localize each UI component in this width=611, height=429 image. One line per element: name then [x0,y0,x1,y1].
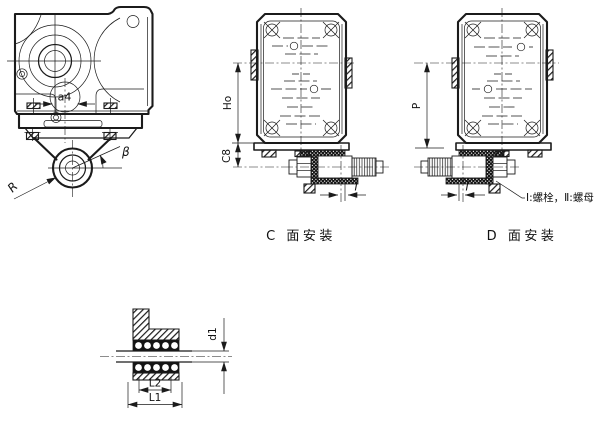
d-height-label: P [411,103,423,109]
hub-upper-bushing [133,340,179,351]
d-left-tab [452,58,459,88]
c-face-caption: C 面安装 [266,229,336,244]
c-height-label: Ho [222,96,234,110]
c-foot-left [262,150,276,157]
hanger-bolt-left [27,133,39,140]
reducer-mounting-drawing: a4 [0,0,611,429]
hub-lower-bushing [133,362,179,373]
d-right-tab [546,50,553,80]
legend-note-text: Ⅰ:螺栓，Ⅱ:螺母 [526,191,594,204]
hub-length-label: L2 [149,378,162,390]
drawing-background [0,0,611,429]
technical-drawing-canvas: a4 [0,0,611,429]
total-length-label: L1 [149,392,162,404]
center-distance-label: a4 [58,91,72,104]
c-right-tab [345,58,352,88]
c-left-tab [251,50,258,80]
angle-label: β [121,145,130,159]
c-clearance-label: C8 [221,149,233,163]
d-foot-right [528,150,542,157]
d-face-caption: D 面安装 [487,229,558,244]
shaft-diameter-label: d1 [207,327,219,340]
